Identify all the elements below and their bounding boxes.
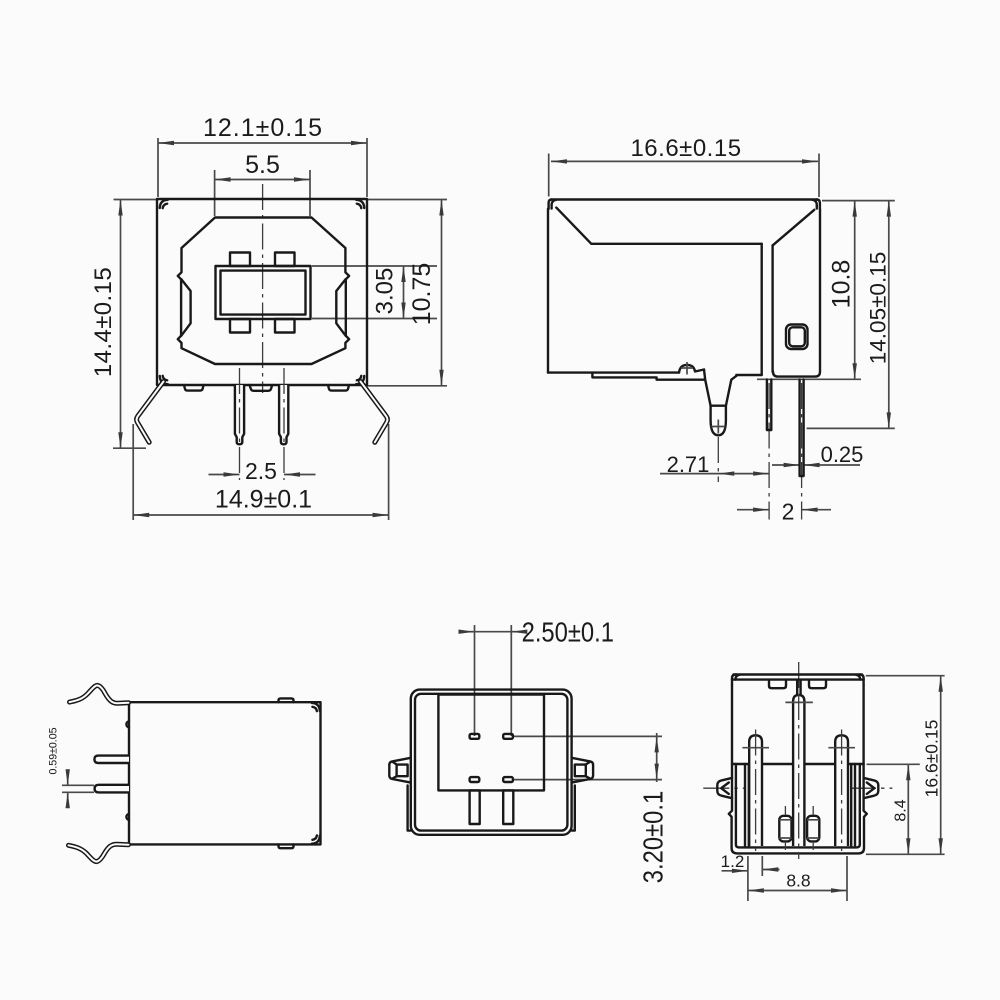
svg-text:0.59±0.05: 0.59±0.05	[48, 727, 60, 774]
svg-text:16.6±0.15: 16.6±0.15	[630, 135, 741, 162]
svg-text:2: 2	[782, 499, 795, 525]
svg-text:12.1±0.15: 12.1±0.15	[203, 114, 323, 142]
svg-text:3.05: 3.05	[372, 268, 399, 315]
svg-text:2.71: 2.71	[667, 452, 710, 477]
svg-text:16.6±0.15: 16.6±0.15	[922, 720, 942, 798]
svg-text:5.5: 5.5	[245, 151, 280, 179]
svg-text:10.75: 10.75	[408, 263, 436, 326]
svg-text:1.2: 1.2	[721, 852, 745, 871]
svg-text:8.8: 8.8	[786, 871, 810, 891]
svg-text:14.9±0.1: 14.9±0.1	[215, 486, 312, 514]
svg-text:14.4±0.15: 14.4±0.15	[90, 267, 117, 377]
svg-text:3.20±0.1: 3.20±0.1	[637, 791, 669, 883]
svg-text:2.50±0.1: 2.50±0.1	[522, 616, 614, 648]
svg-text:0.25: 0.25	[821, 442, 864, 467]
svg-text:10.8: 10.8	[828, 260, 856, 309]
svg-text:8.4: 8.4	[893, 799, 910, 821]
svg-text:2.5: 2.5	[245, 458, 277, 484]
svg-text:14.05±0.15: 14.05±0.15	[866, 252, 891, 364]
